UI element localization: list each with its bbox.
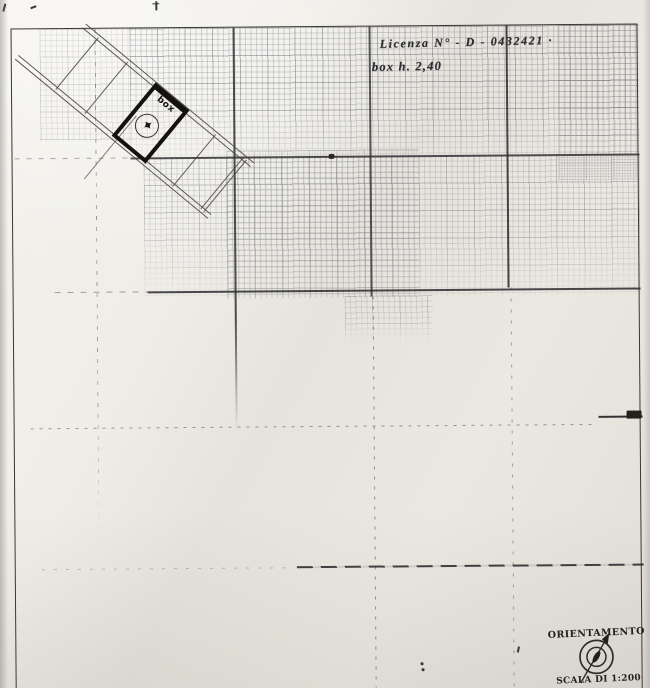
ink-blob [329, 154, 335, 159]
star-stamp-icon: ✦ [138, 117, 156, 134]
stamp-circle: ✦ [130, 109, 164, 143]
paper-edge-shadow [0, 0, 8, 688]
pen-scribble [421, 662, 424, 665]
handwritten-box-height-note: box h. 2,40 [372, 59, 442, 75]
stall-divider [85, 62, 128, 114]
stall-divider [173, 134, 216, 186]
paper-edge-shadow [643, 0, 650, 688]
pen-scribble [422, 668, 425, 671]
pen-scribble [152, 3, 159, 4]
sheet-content: box ✦ Licenza N° - D - 0432421 · box h. … [0, 0, 650, 688]
fine-grid-patch [345, 295, 433, 344]
pen-scribble [30, 5, 36, 9]
fine-grid-patch [558, 25, 640, 181]
stall-divider [55, 37, 98, 89]
ink-blob-right-edge [627, 411, 642, 419]
fine-grid-patch [226, 149, 419, 299]
scanned-plan-sheet: box ✦ Licenza N° - D - 0432421 · box h. … [0, 0, 650, 688]
